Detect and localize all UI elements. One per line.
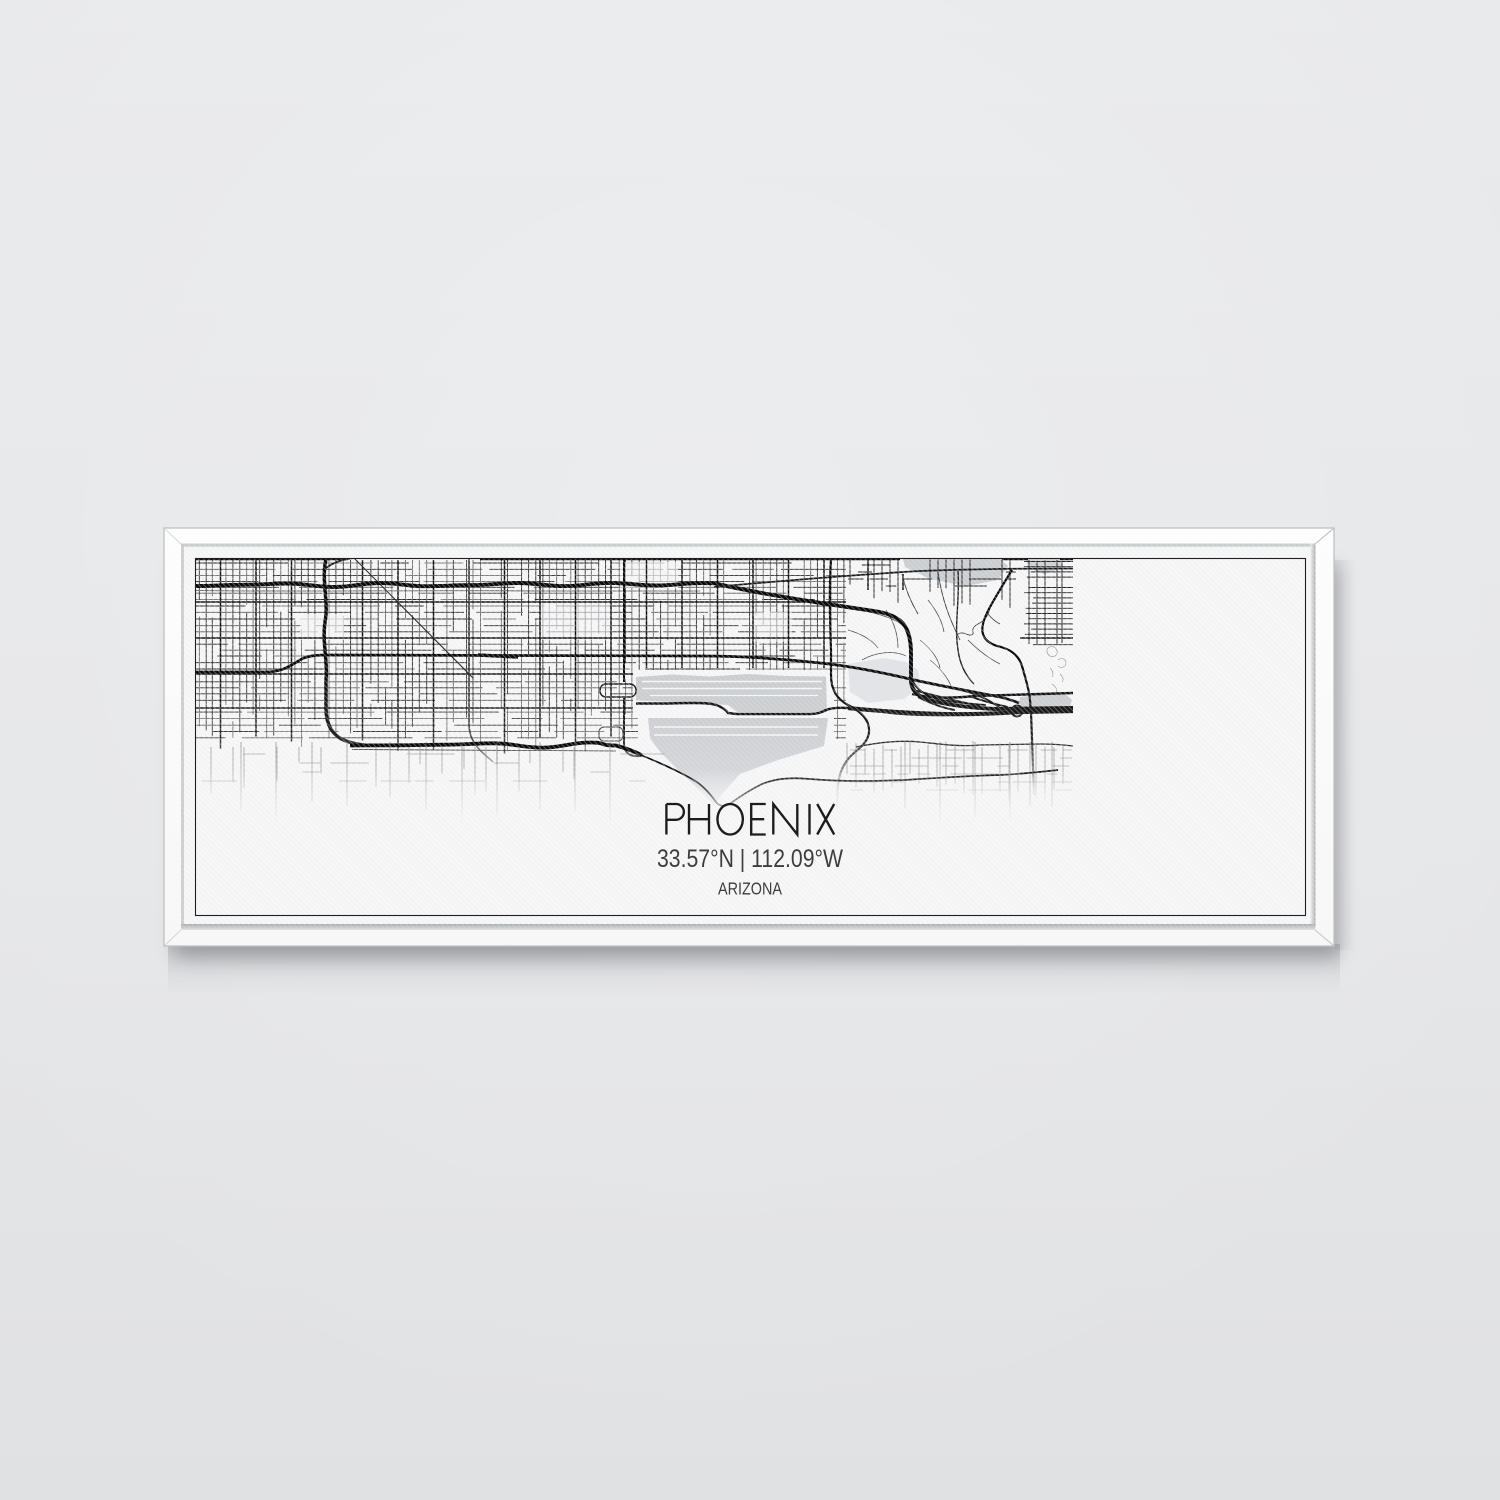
svg-text:33.57°N | 112.09°W: 33.57°N | 112.09°W (657, 845, 843, 873)
svg-text:ARIZONA: ARIZONA (718, 879, 782, 899)
